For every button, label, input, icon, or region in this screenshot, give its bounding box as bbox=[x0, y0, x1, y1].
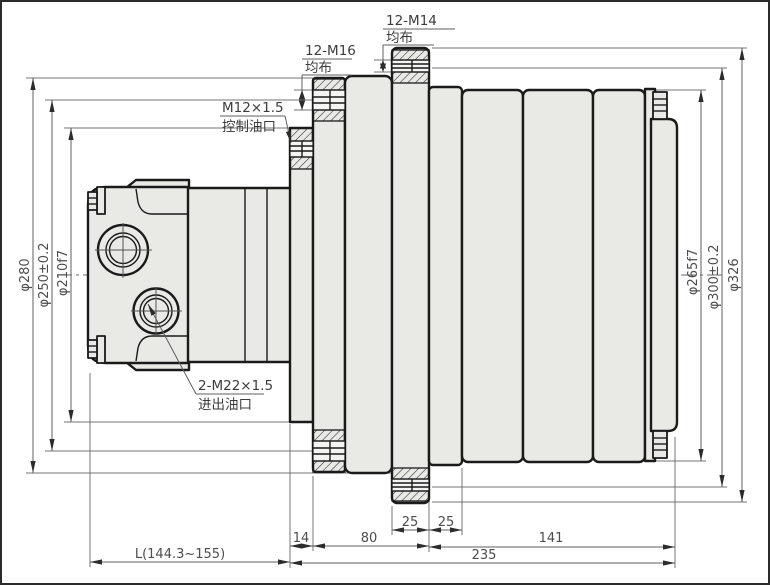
pilot-section bbox=[290, 128, 313, 422]
dim-25b: 25 bbox=[438, 515, 455, 530]
m14-flange bbox=[392, 48, 429, 503]
body-section-3 bbox=[523, 90, 593, 462]
label-control-port-name: 控制油口 bbox=[222, 119, 276, 135]
label-12-m16: 12-M16 bbox=[305, 43, 356, 59]
left-mounting-bolt-bottom bbox=[88, 336, 105, 363]
dim-25a: 25 bbox=[402, 515, 419, 530]
label-12-m16-junbu: 均布 bbox=[305, 60, 332, 76]
dim-dia-250: φ250±0.2 bbox=[37, 243, 52, 308]
body-section-1 bbox=[429, 87, 462, 465]
end-cap bbox=[651, 119, 677, 431]
label-main-port-thread: 2-M22×1.5 bbox=[198, 378, 273, 394]
main-body bbox=[429, 87, 677, 465]
dim-dia-300: φ300±0.2 bbox=[707, 245, 722, 310]
hydraulic-motor-drawing: 12-M16 均布 12-M14 均布 M12×1.5 控制油口 2-M22×1… bbox=[0, 0, 770, 585]
dim-dia-326: φ326 bbox=[727, 258, 742, 291]
body-section-2 bbox=[462, 90, 523, 462]
technical-drawing-page: 12-M16 均布 12-M14 均布 M12×1.5 控制油口 2-M22×1… bbox=[0, 0, 770, 585]
dim-141: 141 bbox=[539, 531, 564, 546]
neck-section bbox=[187, 188, 292, 362]
end-cap-bolt-top bbox=[653, 92, 667, 119]
dim-length-L: L(144.3~155) bbox=[135, 547, 225, 562]
dim-dia-210: φ210f7 bbox=[56, 250, 71, 296]
m16-flange bbox=[313, 78, 345, 472]
body-section-4 bbox=[593, 90, 645, 462]
dim-dia-280: φ280 bbox=[18, 258, 33, 291]
flange-assembly bbox=[290, 48, 429, 503]
dim-dia-265: φ265f7 bbox=[686, 249, 701, 295]
left-mounting-bolt-top bbox=[88, 187, 105, 214]
label-12-m14-junbu: 均布 bbox=[386, 30, 413, 46]
end-cap-bolt-bottom bbox=[653, 431, 667, 458]
dim-80: 80 bbox=[361, 531, 378, 546]
label-control-port-thread: M12×1.5 bbox=[222, 100, 284, 116]
label-main-port-name: 进出油口 bbox=[198, 397, 252, 413]
dim-14: 14 bbox=[293, 531, 310, 546]
label-12-m14: 12-M14 bbox=[386, 13, 437, 29]
flange-spacer bbox=[345, 76, 392, 473]
dim-235: 235 bbox=[472, 548, 497, 563]
port-block-assembly bbox=[88, 180, 292, 370]
